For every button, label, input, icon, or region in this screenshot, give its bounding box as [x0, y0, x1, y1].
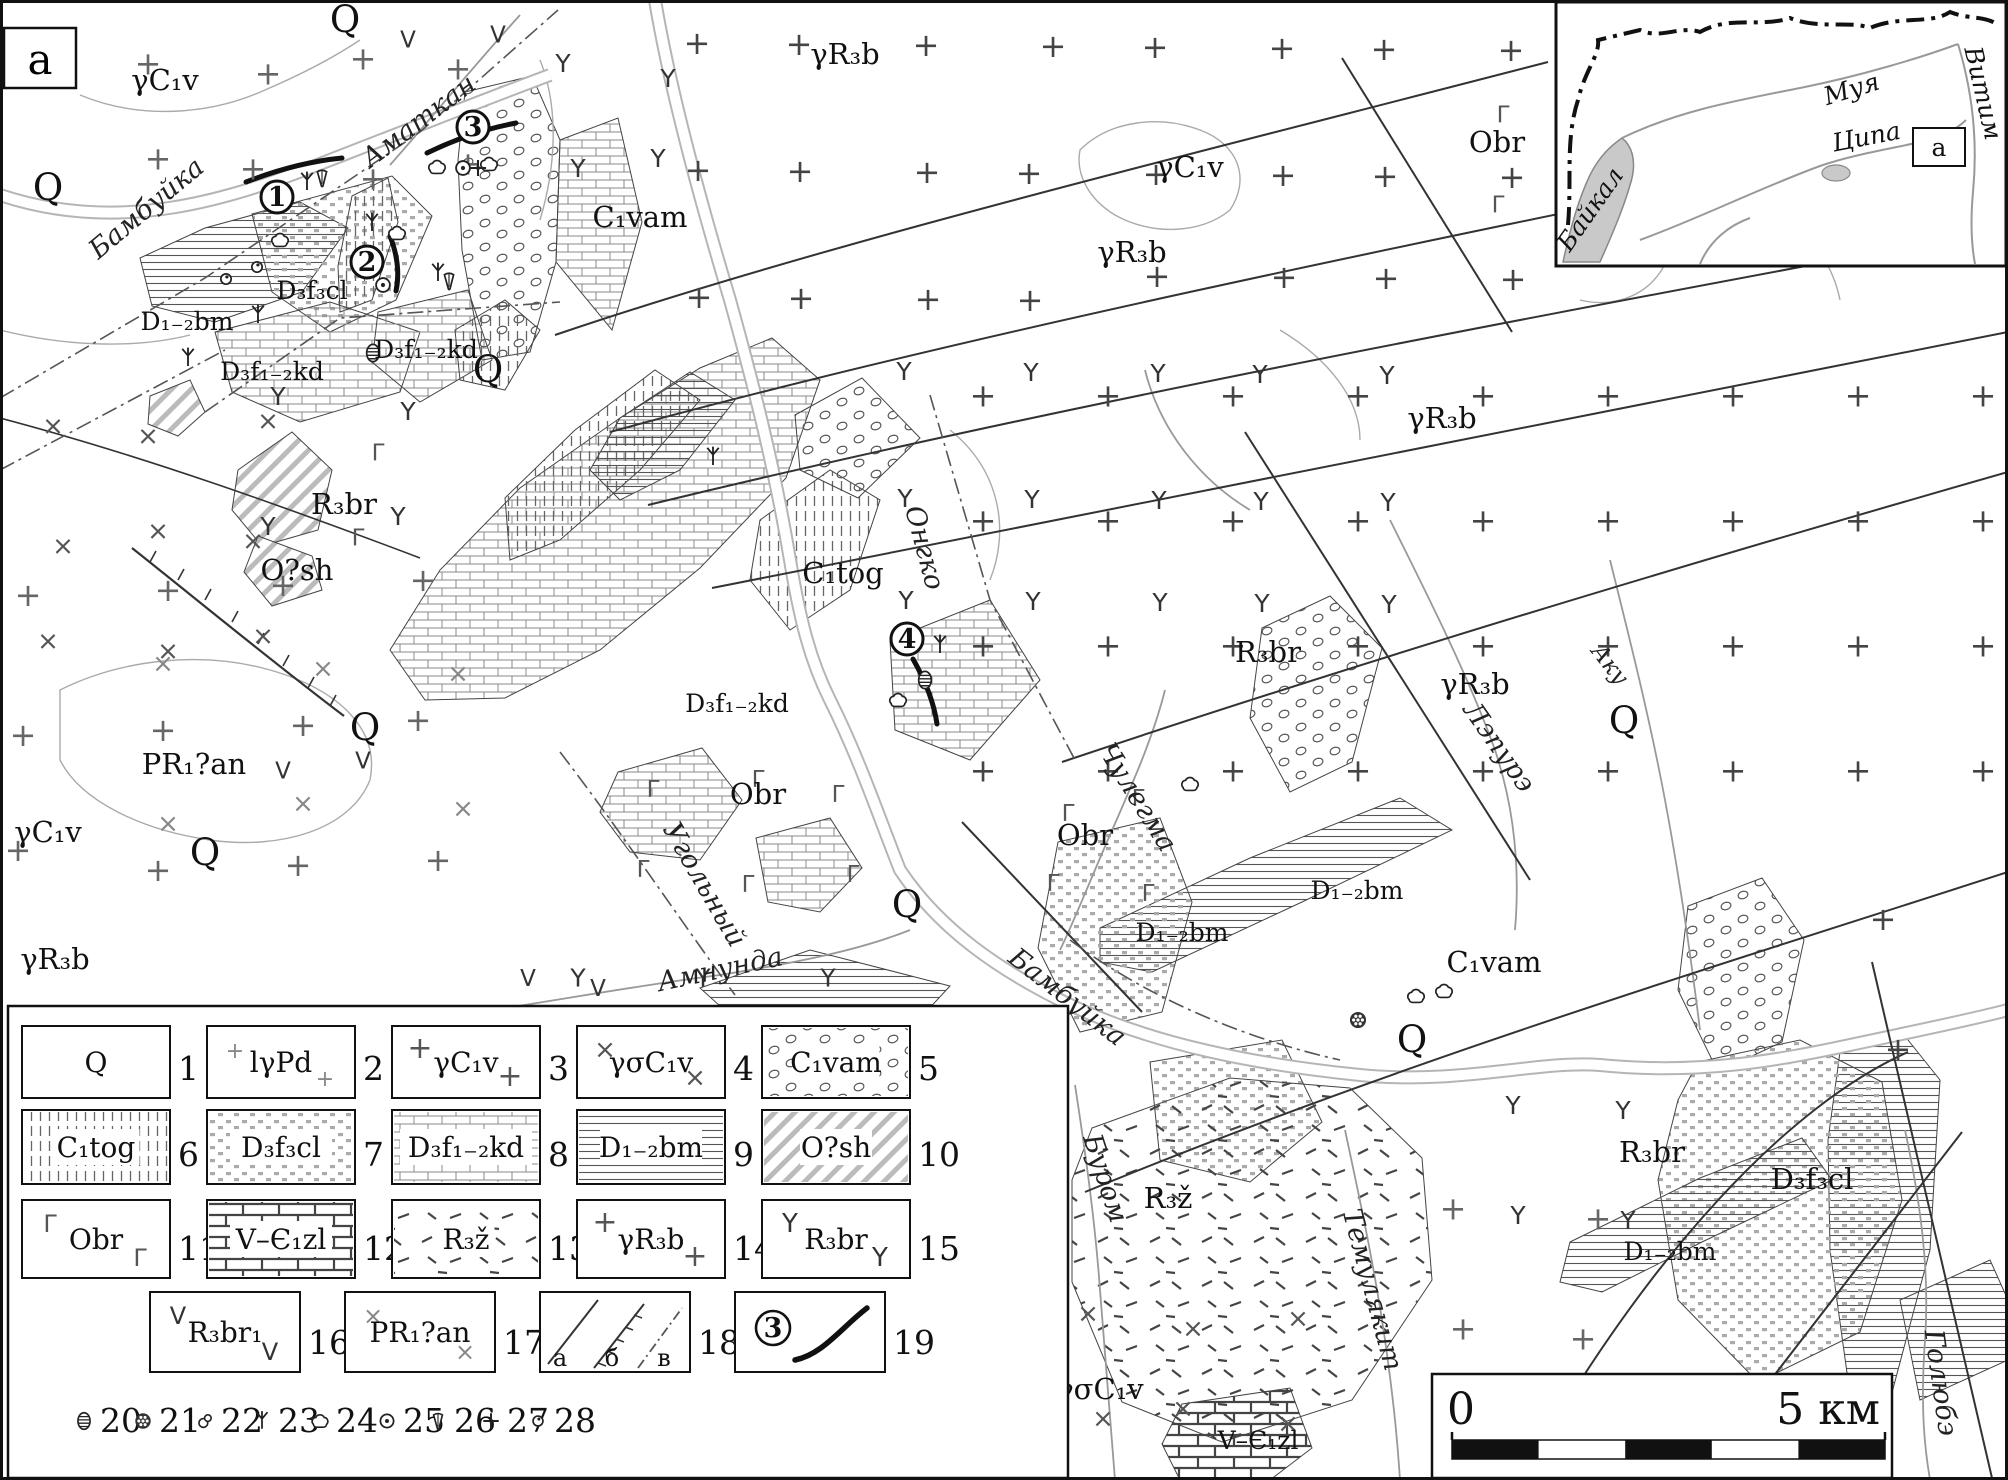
lith-glyph: +	[145, 851, 172, 889]
deposit-number: 1	[261, 181, 293, 213]
lith-glyph: +	[1595, 751, 1622, 789]
lith-glyph: Y	[1253, 589, 1270, 618]
legend-item-number: 6	[178, 1135, 199, 1174]
legend-symbol-number: 24	[336, 1401, 378, 1440]
unit-label: C₁vam	[593, 200, 688, 234]
lith-glyph: +	[1498, 31, 1525, 69]
lith-glyph: +	[1450, 1310, 1477, 1348]
lith-glyph: +	[350, 39, 377, 77]
lith-glyph: Y	[1504, 1091, 1521, 1120]
unit-label: R₃ž	[1144, 1181, 1193, 1215]
lith-glyph: ×	[1077, 1299, 1099, 1329]
lith-glyph: Γ	[1492, 192, 1505, 218]
legend-item-number: 19	[893, 1323, 935, 1362]
deposit-number: 3	[457, 111, 489, 143]
lith-glyph: Γ	[1142, 881, 1155, 907]
lith-glyph: Y	[895, 357, 912, 386]
lith-glyph: +	[290, 706, 317, 744]
lith-glyph: +	[970, 626, 997, 664]
lith-glyph: Y	[1149, 359, 1166, 388]
svg-text:в: в	[657, 1344, 671, 1372]
unit-label: D₁₋₂bm	[1624, 1237, 1717, 1266]
deposit-number: 4	[891, 623, 923, 655]
lith-glyph: Y	[1378, 361, 1395, 390]
svg-text:D₃f₃cl: D₃f₃cl	[241, 1131, 321, 1164]
inset-location-map: а БайкалМуяЦипаВитим	[1550, 2, 2008, 266]
lith-glyph: +	[255, 54, 282, 92]
svg-text:1: 1	[268, 182, 287, 213]
lith-glyph: Γ	[352, 526, 365, 552]
lith-glyph: +	[1595, 501, 1622, 539]
scale-max: 5 км	[1776, 1384, 1880, 1435]
unit-label: PR₁?an	[142, 747, 247, 781]
svg-text:2: 2	[358, 247, 377, 278]
svg-text:Y: Y	[871, 1243, 888, 1273]
lith-glyph: +	[788, 279, 815, 317]
lith-glyph: ×	[1092, 1404, 1114, 1434]
lith-glyph: +	[915, 280, 942, 318]
unit-label: D₁₋₂bm	[1136, 918, 1229, 947]
unit-label: Q	[330, 0, 360, 41]
lith-glyph: +	[240, 149, 267, 187]
legend-item-number: 8	[548, 1135, 569, 1174]
unit-label: γR₃b	[1407, 401, 1476, 435]
geological-map-figure: ++++++++++++++++++++++++++++++++++++++++…	[0, 0, 2008, 1480]
lith-glyph: +	[786, 25, 813, 63]
lith-glyph: +	[1970, 376, 1997, 414]
svg-text:+: +	[316, 1067, 334, 1092]
unit-label: O?sh	[261, 553, 334, 587]
svg-text:PR₁?an: PR₁?an	[370, 1316, 471, 1349]
lith-glyph: +	[1016, 154, 1043, 192]
svg-text:O?sh: O?sh	[801, 1131, 871, 1164]
lith-glyph: Γ	[372, 441, 385, 467]
legend-panel: Q1++lγPd2++γC₁v3××γσC₁v4C₁vam5C₁tog6D₃f₃…	[8, 1006, 1068, 1478]
lith-glyph: +	[1970, 501, 1997, 539]
lith-glyph: +	[1345, 751, 1372, 789]
lith-glyph: +	[913, 26, 940, 64]
lith-glyph: Γ	[637, 857, 650, 883]
lith-glyph: Γ	[832, 782, 845, 808]
unit-label: γR₃b	[1097, 235, 1166, 269]
lith-glyph: +	[1345, 376, 1372, 414]
lith-glyph: +	[1470, 501, 1497, 539]
lith-glyph: Γ	[847, 862, 860, 888]
lith-glyph: ×	[452, 794, 474, 824]
unit-label: D₁₋₂bm	[141, 307, 234, 336]
lith-glyph: +	[1845, 626, 1872, 664]
svg-text:а: а	[553, 1344, 567, 1372]
legend-item-number: 4	[733, 1049, 754, 1088]
lith-glyph: ×	[147, 516, 169, 546]
unit-label: γC₁v	[1156, 150, 1224, 184]
lith-glyph: Y	[1379, 488, 1396, 517]
unit-label: Q	[350, 706, 380, 749]
lith-glyph: ×	[292, 789, 314, 819]
legend-item-number: 3	[548, 1049, 569, 1088]
unit-label: D₃f₁₋₂kd	[685, 689, 789, 718]
lith-glyph: +	[1720, 376, 1747, 414]
lith-glyph: V	[490, 22, 506, 48]
unit-label: γC₁v	[14, 815, 82, 849]
lith-glyph: Y	[569, 154, 586, 183]
lith-glyph: Y	[1024, 587, 1041, 616]
unit-label: V–Є₁zl	[1217, 1426, 1299, 1455]
lith-glyph: +	[684, 24, 711, 62]
lith-glyph: Γ	[742, 872, 755, 898]
unit-label: C₁tog	[802, 556, 884, 590]
svg-text:D₃f₁₋₂kd: D₃f₁₋₂kd	[408, 1131, 524, 1164]
lith-glyph: +	[1845, 501, 1872, 539]
svg-text:γσC₁v: γσC₁v	[609, 1046, 693, 1079]
lith-glyph: +	[1870, 900, 1897, 938]
lith-glyph: +	[1372, 157, 1399, 195]
legend-item-number: 9	[733, 1135, 754, 1174]
unit-label: R₃br	[311, 487, 377, 521]
trilobite-symbol	[78, 1413, 90, 1430]
lith-glyph: Y	[1023, 485, 1040, 514]
legend-item-number: 17	[503, 1323, 545, 1362]
lith-glyph: +	[970, 501, 997, 539]
unit-label: γR₃b	[1440, 667, 1509, 701]
lith-glyph: +	[425, 841, 452, 879]
unit-label: D₃f₃cl	[276, 276, 347, 305]
unit-label: Q	[473, 348, 503, 391]
lith-glyph: +	[10, 716, 37, 754]
legend-symbol-number: 28	[554, 1401, 596, 1440]
dotc-symbol	[376, 278, 390, 292]
lith-glyph: +	[1095, 626, 1122, 664]
lith-glyph: ×	[52, 531, 74, 561]
lith-glyph: +	[1720, 501, 1747, 539]
svg-text:V: V	[262, 1338, 279, 1366]
svg-text:V: V	[170, 1302, 187, 1330]
legend-item-number: 15	[918, 1229, 960, 1268]
unit-label: Q	[33, 166, 63, 209]
lith-glyph: +	[405, 701, 432, 739]
svg-text:б: б	[605, 1344, 619, 1372]
lith-glyph: V	[355, 749, 371, 775]
svg-text:C₁tog: C₁tog	[57, 1131, 136, 1164]
legend-item-number: 5	[918, 1049, 939, 1088]
svg-text:V–Є₁zl: V–Є₁zl	[235, 1223, 327, 1256]
unit-label: γR₃b	[20, 942, 89, 976]
coral-symbol	[135, 1413, 150, 1428]
lith-glyph: +	[1845, 751, 1872, 789]
svg-text:Y: Y	[781, 1209, 798, 1239]
lith-glyph: ×	[42, 411, 64, 441]
legend-item-number: 7	[363, 1135, 384, 1174]
svg-text:+: +	[497, 1059, 522, 1094]
lith-glyph: +	[1500, 260, 1527, 298]
lith-glyph: ×	[252, 621, 274, 651]
lith-glyph: Y	[399, 397, 416, 426]
svg-text:R₃ž: R₃ž	[442, 1223, 489, 1256]
lith-glyph: +	[970, 751, 997, 789]
inset-frame-label: а	[1932, 133, 1947, 162]
lith-glyph: +	[1371, 30, 1398, 68]
lith-glyph: +	[1142, 28, 1169, 66]
lith-glyph: Y	[389, 502, 406, 531]
svg-text:R₃br₁: R₃br₁	[188, 1316, 263, 1349]
lake-small	[1822, 165, 1850, 181]
lith-glyph: +	[1885, 1030, 1912, 1068]
lith-glyph: +	[15, 576, 42, 614]
unit-label: γC₁v	[131, 63, 199, 97]
svg-text:D₁₋₂bm: D₁₋₂bm	[599, 1131, 703, 1164]
lith-glyph: +	[1720, 751, 1747, 789]
lith-glyph: Y	[1150, 486, 1167, 515]
lith-glyph: Γ	[1047, 871, 1060, 897]
lith-glyph: Y	[659, 64, 676, 93]
lith-glyph: V	[590, 976, 606, 1002]
legend-symbol-number: 21	[159, 1401, 201, 1440]
lith-glyph: V	[520, 966, 536, 992]
unit-label: Obr	[730, 777, 786, 811]
lith-glyph: +	[1095, 501, 1122, 539]
svg-text:lγPd: lγPd	[250, 1046, 313, 1079]
lith-glyph: Y	[269, 382, 286, 411]
lith-glyph: +	[686, 278, 713, 316]
lith-glyph: ×	[447, 659, 469, 689]
lith-glyph: +	[914, 153, 941, 191]
coral-symbol	[1350, 1012, 1366, 1028]
scale-bar: 0 5 км	[1432, 1374, 1892, 1478]
deposit-number: 2	[351, 246, 383, 278]
lith-glyph: Y	[1380, 590, 1397, 619]
lith-glyph: +	[1345, 501, 1372, 539]
lith-glyph: Y	[1151, 588, 1168, 617]
lith-glyph: +	[1570, 1320, 1597, 1358]
lith-glyph: ×	[1182, 1314, 1204, 1344]
lith-glyph: Y	[259, 512, 276, 541]
figure-letter-box: a	[4, 28, 76, 88]
lith-glyph: +	[1970, 626, 1997, 664]
lith-glyph: +	[1040, 27, 1067, 65]
lith-glyph: Y	[1509, 1201, 1526, 1230]
svg-text:R₃br: R₃br	[804, 1223, 868, 1256]
legend-item-number: 1	[178, 1049, 199, 1088]
lith-glyph: Y	[1022, 358, 1039, 387]
svg-text:C₁vam: C₁vam	[790, 1046, 882, 1079]
svg-text:3: 3	[464, 112, 483, 143]
unit-label: D₁₋₂bm	[1311, 876, 1404, 905]
lith-glyph: +	[1017, 281, 1044, 319]
unit-label: D₃f₁₋₂kd	[220, 357, 324, 386]
lith-glyph: +	[1220, 751, 1247, 789]
lith-glyph: Y	[1614, 1096, 1631, 1125]
svg-text:+: +	[226, 1039, 244, 1064]
lith-glyph: +	[285, 846, 312, 884]
lith-glyph: Y	[1252, 487, 1269, 516]
lith-glyph: ×	[1172, 1394, 1194, 1424]
lith-glyph: Y	[1619, 1206, 1636, 1235]
svg-text:3: 3	[764, 1313, 783, 1344]
unit-label: Obr	[1469, 125, 1525, 159]
cup-symbol	[221, 274, 231, 284]
lith-glyph: +	[1970, 751, 1997, 789]
lith-glyph: +	[787, 152, 814, 190]
lith-glyph: ×	[157, 809, 179, 839]
cup-symbol	[252, 262, 262, 272]
unit-label: γσC₁v	[1056, 1372, 1144, 1406]
svg-text:Γ: Γ	[133, 1244, 147, 1272]
lith-glyph: +	[1440, 1190, 1467, 1228]
lith-glyph: Y	[1251, 360, 1268, 389]
lith-glyph: V	[400, 27, 416, 53]
dotc-symbol	[456, 161, 470, 175]
legend-item-number: 18	[698, 1323, 740, 1362]
svg-text:γR₃b: γR₃b	[618, 1223, 685, 1256]
svg-text:+: +	[407, 1031, 432, 1066]
svg-text:Obr: Obr	[69, 1223, 124, 1256]
lith-glyph: +	[1470, 626, 1497, 664]
map-canvas: ++++++++++++++++++++++++++++++++++++++++…	[0, 0, 2008, 1480]
trilobite-symbol	[919, 671, 932, 688]
unit-label: Obr	[1057, 818, 1113, 852]
lith-glyph: +	[410, 561, 437, 599]
lith-glyph: +	[1585, 1200, 1612, 1238]
lith-glyph: +	[1220, 376, 1247, 414]
legend-item-number: 2	[363, 1049, 384, 1088]
unit-label: D₃f₃cl	[1771, 1162, 1854, 1196]
lith-glyph: Y	[819, 963, 836, 992]
lith-glyph: +	[1345, 626, 1372, 664]
svg-text:4: 4	[898, 624, 917, 655]
lith-glyph: ×	[152, 649, 174, 679]
cup-symbol	[533, 1416, 543, 1426]
lith-glyph: +	[1220, 501, 1247, 539]
lith-glyph: +	[1271, 258, 1298, 296]
lith-glyph: Y	[649, 144, 666, 173]
unit-label: Q	[892, 883, 922, 926]
lith-glyph: +	[1269, 29, 1296, 67]
lith-glyph: +	[1270, 156, 1297, 194]
lith-glyph: +	[1373, 259, 1400, 297]
svg-text:γC₁v: γC₁v	[433, 1046, 498, 1079]
unit-label: γR₃b	[810, 37, 879, 71]
unit-label: R₃br	[1235, 635, 1301, 669]
lith-glyph: Y	[897, 586, 914, 615]
legend-item-number: 16	[308, 1323, 350, 1362]
lith-glyph: ×	[137, 421, 159, 451]
svg-text:+: +	[682, 1239, 707, 1274]
svg-text:Q: Q	[85, 1046, 108, 1079]
lith-glyph: +	[685, 151, 712, 189]
figure-letter: a	[27, 35, 52, 84]
lith-glyph: +	[155, 571, 182, 609]
lith-glyph: ×	[312, 654, 334, 684]
scale-zero: 0	[1447, 1384, 1475, 1435]
lith-glyph: +	[1095, 376, 1122, 414]
lith-glyph: +	[1720, 626, 1747, 664]
unit-label: Q	[1609, 699, 1639, 742]
lith-glyph: +	[1499, 158, 1526, 196]
unit-label: C₁vam	[1447, 945, 1542, 979]
lith-glyph: +	[1595, 376, 1622, 414]
svg-text:Γ: Γ	[43, 1210, 57, 1238]
unit-label: D₃f₁₋₂kd	[374, 335, 478, 364]
dotc-symbol	[380, 1414, 393, 1427]
legend-item-number: 10	[918, 1135, 960, 1174]
unit-label: Q	[1397, 1018, 1427, 1061]
lith-glyph: Γ	[647, 777, 660, 803]
lith-glyph: ×	[37, 626, 59, 656]
svg-text:+: +	[592, 1205, 617, 1240]
lith-glyph: +	[1845, 376, 1872, 414]
lith-glyph: +	[150, 711, 177, 749]
lith-glyph: Y	[569, 963, 586, 992]
lith-glyph: V	[275, 759, 291, 785]
lith-glyph: +	[970, 376, 997, 414]
lith-glyph: ×	[1287, 1304, 1309, 1334]
unit-label: Q	[190, 831, 220, 874]
lith-glyph: Y	[554, 49, 571, 78]
legend-symbol-number: 22	[221, 1401, 263, 1440]
unit-label: R₃br	[1619, 1135, 1685, 1169]
